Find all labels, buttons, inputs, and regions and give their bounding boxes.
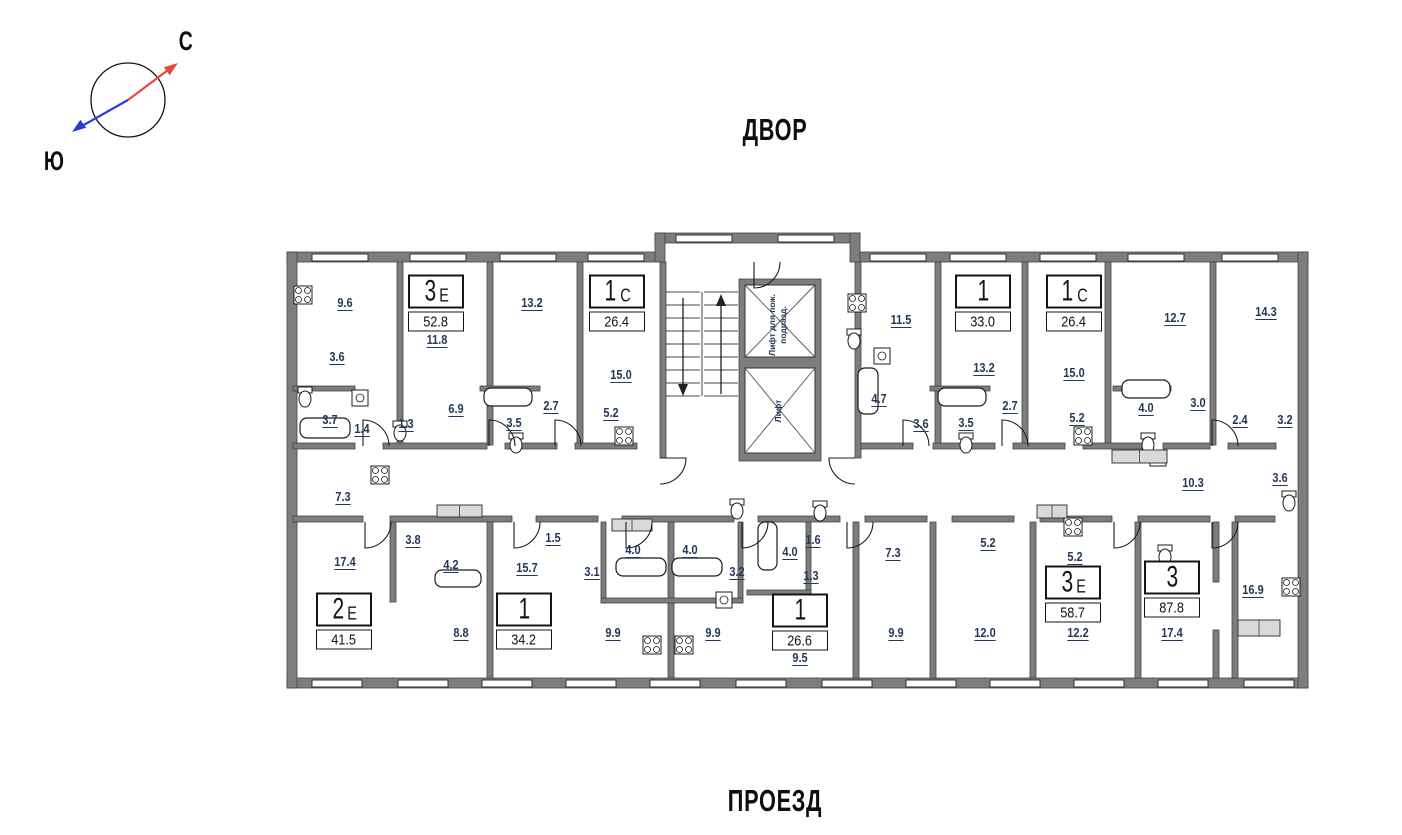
- apartment-type: 3Е: [1045, 566, 1101, 600]
- apartment-suffix: Е: [440, 287, 450, 305]
- room-area-label: 2.7: [1002, 399, 1017, 413]
- room-area-label: 13.2: [973, 361, 994, 375]
- wall: [1022, 262, 1028, 445]
- room-area-label: 3.5: [506, 416, 521, 430]
- room-area-label: 1.4: [354, 422, 369, 436]
- apartment-number: 2: [332, 595, 344, 625]
- room-area-label: 12.2: [1067, 626, 1088, 640]
- room-area-label: 11.8: [427, 333, 448, 347]
- room-area-label: 3.1: [584, 565, 599, 579]
- apartment-suffix: С: [1077, 287, 1087, 305]
- window: [410, 254, 466, 261]
- fire-elevator-label-line1: Лифт для пож.: [767, 294, 777, 356]
- wall: [1030, 522, 1036, 678]
- room-area-label: 15.0: [610, 368, 631, 382]
- door: [829, 458, 855, 484]
- apartment-area: 87.8: [1160, 599, 1185, 616]
- room-area-label: 4.0: [782, 545, 797, 559]
- apartment-suffix: С: [620, 287, 630, 305]
- room-area-label: 4.0: [1138, 401, 1153, 415]
- wall: [1298, 252, 1308, 688]
- wall: [1213, 522, 1219, 582]
- room-area-label: 4.7: [871, 392, 886, 406]
- room-area-label: 12.0: [974, 626, 995, 640]
- apartment-area: 52.8: [424, 313, 449, 330]
- window: [950, 254, 1006, 261]
- room-area-label: 17.4: [1161, 626, 1182, 640]
- apartment-area-box: 26.4: [1046, 312, 1102, 332]
- window: [500, 254, 556, 261]
- wall: [1105, 262, 1111, 445]
- wall: [577, 262, 583, 445]
- staircase: [666, 292, 738, 396]
- stove: [848, 294, 866, 312]
- room-area-label: 4.0: [625, 543, 640, 557]
- apartment-label: 3Е58.7: [1045, 566, 1101, 623]
- wall: [952, 516, 1014, 522]
- stove: [643, 636, 661, 654]
- room-area-label: 3.6: [913, 417, 928, 431]
- wall: [1210, 262, 1216, 445]
- stair-down-arrowhead: [678, 384, 688, 396]
- room-area-label: 4.2: [443, 558, 458, 572]
- room-area-label: 9.5: [792, 651, 807, 665]
- wall: [655, 233, 665, 262]
- window: [778, 235, 834, 242]
- wall: [1163, 443, 1210, 449]
- apartment-area-box: 58.7: [1045, 603, 1101, 623]
- room-area-label: 9.9: [705, 626, 720, 640]
- room-area-label: 8.8: [453, 626, 468, 640]
- wall: [1213, 630, 1219, 678]
- room-area-label: 9.9: [888, 626, 903, 640]
- apartment-label: 1С26.4: [589, 275, 645, 332]
- apartment-area: 58.7: [1061, 604, 1086, 621]
- room-area-label: 3.5: [958, 416, 973, 430]
- window: [736, 680, 786, 687]
- wall: [865, 516, 927, 522]
- apartment-type: 1: [772, 594, 828, 628]
- window: [650, 680, 700, 687]
- room-area-label: 1.5: [545, 531, 560, 545]
- room-area-label: 1.3: [803, 569, 818, 583]
- wall: [601, 522, 606, 603]
- room-area-label: 3.2: [729, 565, 744, 579]
- wall: [287, 252, 297, 688]
- floorplan-drawing: Лифт для пож. подразд. Лифт: [0, 0, 1402, 835]
- apartment-area-box: 34.2: [496, 630, 552, 650]
- apartment-type: 1: [496, 593, 552, 627]
- toilet: [814, 505, 826, 521]
- apartment-area-box: 26.4: [589, 312, 645, 332]
- window: [1128, 254, 1184, 261]
- apartment-area-box: 26.6: [772, 631, 828, 651]
- elevator-label: Лифт: [773, 400, 783, 423]
- wall: [293, 443, 355, 449]
- room-area-label: 7.3: [885, 546, 900, 560]
- wall: [930, 522, 936, 678]
- room-area-label: 9.9: [605, 626, 620, 640]
- apartment-type: 2Е: [316, 593, 372, 627]
- floorplan-page: С Ю ДВОР ПРОЕЗД Лифт для пож. подразд. Л…: [0, 0, 1402, 835]
- window: [312, 254, 368, 261]
- apartment-suffix: Е: [348, 605, 358, 623]
- room-area-label: 5.2: [1067, 550, 1082, 564]
- bathtub: [1122, 380, 1170, 398]
- room-area-label: 9.6: [337, 296, 352, 310]
- wall: [390, 522, 396, 602]
- stove: [1074, 427, 1092, 445]
- wall: [1135, 522, 1141, 678]
- room-area-label: 1.6: [805, 533, 820, 547]
- apartment-area: 26.4: [1062, 313, 1087, 330]
- apartment-number: 1: [794, 596, 806, 626]
- apartment-suffix: Е: [1077, 578, 1087, 596]
- apartment-area: 41.5: [332, 631, 357, 648]
- room-area-label: 17.4: [334, 555, 355, 569]
- washer: [716, 592, 732, 608]
- wall: [383, 443, 487, 449]
- window: [1074, 680, 1124, 687]
- door: [514, 522, 540, 548]
- wall: [861, 443, 913, 449]
- window: [1222, 254, 1278, 261]
- door: [365, 522, 391, 548]
- bathtub: [435, 570, 481, 587]
- fire-elevator-label-line2: подразд.: [778, 306, 788, 344]
- stove: [294, 286, 312, 304]
- room-area-label: 3.0: [1190, 396, 1205, 410]
- apartment-number: 3: [424, 277, 436, 307]
- apartment-area: 26.4: [605, 313, 630, 330]
- room-area-label: 15.7: [516, 561, 537, 575]
- room-area-label: 3.7: [322, 413, 337, 427]
- room-area-label: 2.4: [1232, 413, 1247, 427]
- wall: [536, 516, 598, 522]
- wall: [855, 262, 861, 458]
- apartment-number: 3: [1061, 568, 1073, 598]
- door: [660, 458, 686, 484]
- toilet: [960, 437, 972, 453]
- door: [847, 522, 873, 548]
- stove: [371, 466, 389, 484]
- toilet: [1283, 495, 1295, 511]
- apartment-area: 33.0: [971, 313, 996, 330]
- room-area-label: 16.9: [1242, 583, 1263, 597]
- apartment-area-box: 52.8: [408, 312, 464, 332]
- room-area-label: 11.5: [891, 313, 912, 327]
- apartment-type: 1: [955, 275, 1011, 309]
- stove: [1064, 518, 1082, 536]
- window: [566, 680, 616, 687]
- room-area-label: 14.3: [1255, 305, 1276, 319]
- room-area-label: 5.2: [603, 406, 618, 420]
- apartment-label: 134.2: [496, 593, 552, 650]
- window: [398, 680, 448, 687]
- toilet: [299, 391, 311, 407]
- apartment-type: 3: [1144, 561, 1200, 595]
- room-area-label: 3.6: [329, 350, 344, 364]
- apartment-type: 1С: [1046, 275, 1102, 309]
- toilet: [510, 437, 522, 453]
- room-area-label: 2.7: [543, 399, 558, 413]
- bathtub: [672, 558, 722, 576]
- room-area-label: 5.2: [980, 536, 995, 550]
- wall: [1138, 516, 1210, 522]
- bathtub: [938, 388, 986, 406]
- apartment-number: 1: [605, 277, 617, 307]
- wall: [758, 516, 840, 522]
- apartment-area-box: 41.5: [316, 630, 372, 650]
- wall: [1228, 443, 1276, 449]
- bathtub: [616, 558, 666, 576]
- window: [1158, 680, 1208, 687]
- bathtub: [484, 388, 532, 406]
- room-area-label: 15.0: [1063, 366, 1084, 380]
- window: [588, 254, 644, 261]
- wall: [293, 516, 363, 522]
- wall: [1235, 516, 1275, 522]
- washer: [874, 348, 890, 364]
- washer: [352, 390, 368, 406]
- toilet: [731, 503, 743, 519]
- apartment-number: 1: [1062, 277, 1074, 307]
- toilet: [848, 333, 860, 349]
- window: [1040, 254, 1096, 261]
- window: [990, 680, 1040, 687]
- apartment-area: 26.6: [788, 632, 813, 649]
- room-area-label: 3.8: [405, 533, 420, 547]
- room-area-label: 13.2: [521, 296, 542, 310]
- apartment-number: 3: [1166, 563, 1178, 593]
- room-area-label: 3.2: [1277, 413, 1292, 427]
- window: [1244, 680, 1294, 687]
- room-area-label: 6.9: [448, 402, 463, 416]
- stair-up-arrowhead: [716, 294, 726, 306]
- wall: [1232, 522, 1238, 678]
- apartment-label: 2Е41.5: [316, 593, 372, 650]
- window: [482, 680, 532, 687]
- wall: [660, 262, 666, 458]
- apartment-area: 34.2: [512, 631, 537, 648]
- apartment-type: 1С: [589, 275, 645, 309]
- wall: [850, 233, 860, 262]
- room-area-label: 12.7: [1164, 311, 1185, 325]
- stove: [615, 427, 633, 445]
- window: [906, 680, 956, 687]
- bathtub: [858, 368, 878, 414]
- apartment-label: 133.0: [955, 275, 1011, 332]
- apartment-area-box: 87.8: [1144, 598, 1200, 618]
- room-area-label: 4.0: [682, 543, 697, 557]
- apartment-label: 387.8: [1144, 561, 1200, 618]
- room-area-label: 5.2: [1069, 411, 1084, 425]
- apartment-label: 126.6: [772, 594, 828, 651]
- apartment-area-box: 33.0: [955, 312, 1011, 332]
- apartment-number: 1: [518, 595, 530, 625]
- apartment-label: 1С26.4: [1046, 275, 1102, 332]
- window: [312, 680, 362, 687]
- stove: [675, 636, 693, 654]
- apartment-type: 3Е: [408, 275, 464, 309]
- stove: [1282, 578, 1300, 596]
- apartment-label: 3Е52.8: [408, 275, 464, 332]
- room-area-label: 7.3: [335, 490, 350, 504]
- window: [676, 235, 732, 242]
- wall: [1013, 443, 1065, 449]
- wall: [487, 522, 493, 678]
- wall: [935, 262, 941, 445]
- window: [822, 680, 872, 687]
- room-area-label: 3.6: [1272, 471, 1287, 485]
- room-area-label: 10.3: [1182, 476, 1203, 490]
- apartment-number: 1: [977, 277, 989, 307]
- window: [870, 254, 926, 261]
- wall: [487, 262, 493, 445]
- room-area-label: 1.3: [398, 417, 413, 431]
